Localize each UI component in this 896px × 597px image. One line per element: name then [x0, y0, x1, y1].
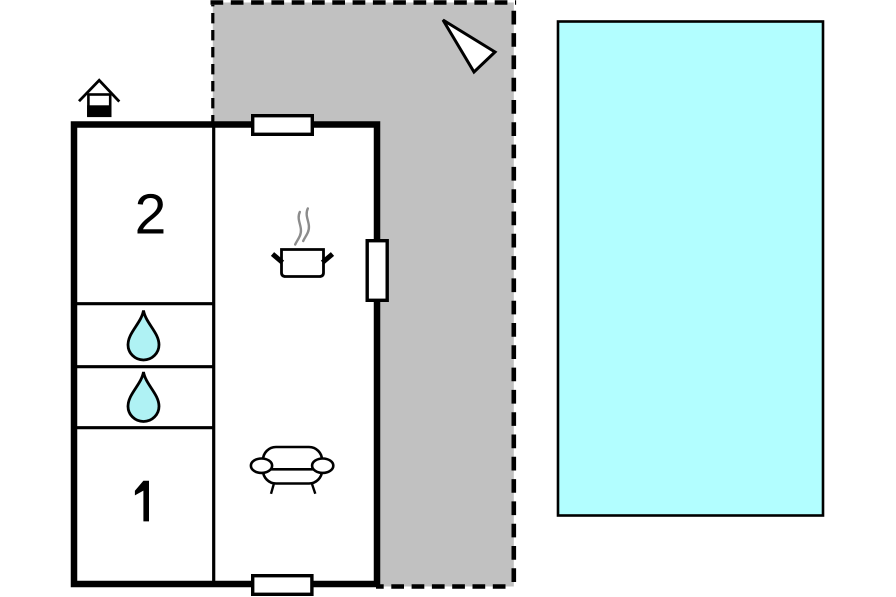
- svg-text:2: 2: [135, 183, 167, 247]
